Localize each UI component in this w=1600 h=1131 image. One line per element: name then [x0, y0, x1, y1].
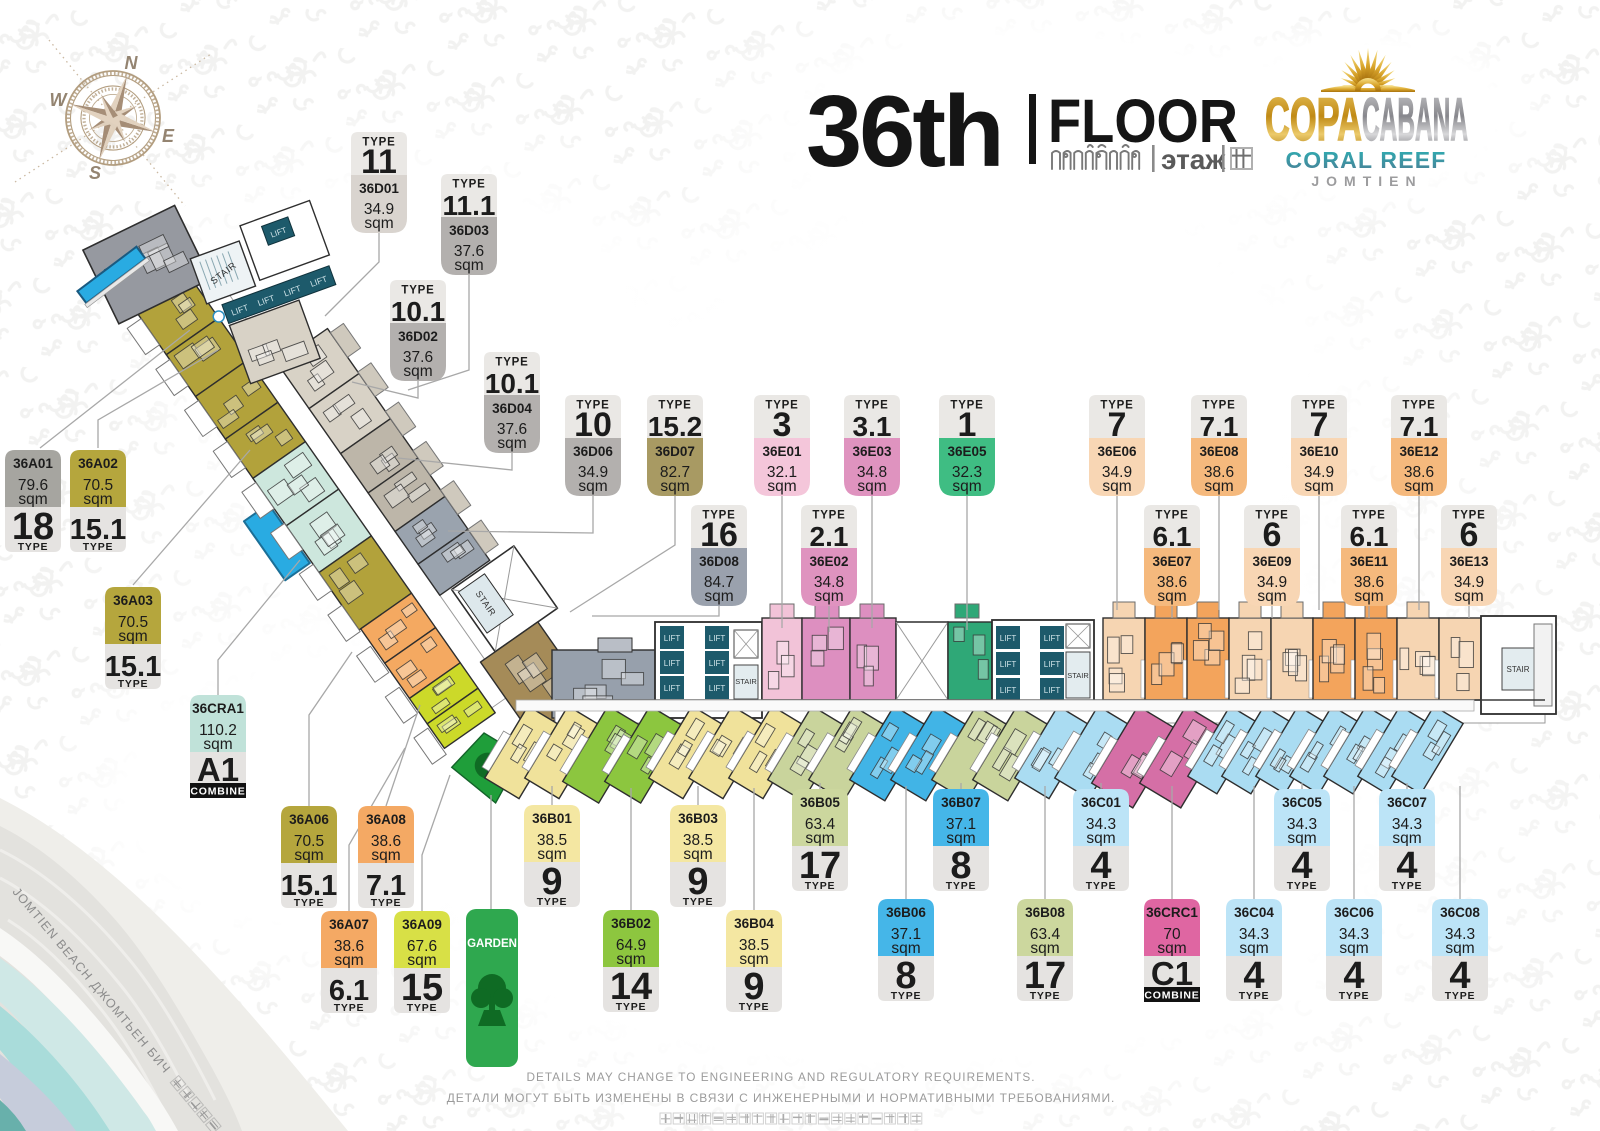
svg-text:36B04: 36B04	[734, 916, 774, 931]
svg-text:7.1: 7.1	[1400, 411, 1439, 442]
svg-text:TYPE: TYPE	[1202, 400, 1235, 412]
svg-text:36B01: 36B01	[532, 811, 572, 826]
svg-text:LIFT: LIFT	[1044, 660, 1061, 669]
svg-text:TYPE: TYPE	[1402, 400, 1435, 412]
svg-text:11.1: 11.1	[443, 190, 496, 221]
svg-text:2.1: 2.1	[810, 521, 849, 552]
svg-text:JOMTIEN: JOMTIEN	[1311, 173, 1422, 189]
svg-text:этаж: этаж	[1161, 144, 1226, 175]
svg-text:36E01: 36E01	[762, 444, 802, 459]
svg-text:sqm: sqm	[403, 363, 432, 380]
svg-text:36E08: 36E08	[1199, 444, 1239, 459]
svg-text:TYPE: TYPE	[1030, 990, 1061, 1002]
svg-text:sqm: sqm	[1257, 588, 1286, 605]
svg-text:sqm: sqm	[497, 435, 526, 452]
svg-text:sqm: sqm	[1404, 478, 1433, 495]
svg-text:TYPE: TYPE	[658, 400, 691, 412]
svg-text:STAIR: STAIR	[1507, 665, 1530, 674]
svg-text:sqm: sqm	[660, 478, 689, 495]
svg-text:7.1: 7.1	[1200, 411, 1239, 442]
svg-text:TYPE: TYPE	[891, 990, 922, 1002]
svg-text:DETAILS MAY CHANGE TO ENGINEER: DETAILS MAY CHANGE TO ENGINEERING AND RE…	[526, 1070, 1035, 1084]
svg-text:36A06: 36A06	[289, 812, 329, 827]
svg-text:TYPE: TYPE	[537, 896, 568, 908]
svg-text:36E09: 36E09	[1252, 554, 1291, 569]
svg-text:36CRA1: 36CRA1	[192, 701, 244, 716]
svg-text:ДЕТАЛИ МОГУТ БЫТЬ ИЗМЕНЕНЫ В С: ДЕТАЛИ МОГУТ БЫТЬ ИЗМЕНЕНЫ В СВЯЗИ С ИНЖ…	[447, 1091, 1116, 1105]
svg-text:15.2: 15.2	[648, 411, 703, 442]
svg-text:CABANA: CABANA	[1362, 86, 1468, 153]
svg-text:6: 6	[1460, 516, 1479, 554]
svg-text:COMBINE: COMBINE	[190, 786, 245, 798]
svg-text:TYPE: TYPE	[495, 357, 528, 369]
svg-text:sqm: sqm	[704, 588, 733, 605]
svg-text:36C07: 36C07	[1387, 795, 1427, 810]
svg-text:10.1: 10.1	[391, 296, 446, 327]
svg-text:TYPE: TYPE	[1392, 880, 1423, 892]
svg-text:36D07: 36D07	[655, 444, 695, 459]
svg-text:36B02: 36B02	[611, 916, 651, 931]
svg-text:10.1: 10.1	[485, 368, 540, 399]
svg-text:TYPE: TYPE	[118, 678, 149, 690]
svg-text:7: 7	[1310, 406, 1329, 444]
svg-text:sqm: sqm	[578, 478, 607, 495]
svg-text:36B03: 36B03	[678, 811, 718, 826]
svg-text:LIFT: LIFT	[664, 684, 681, 693]
svg-text:36B08: 36B08	[1025, 905, 1065, 920]
svg-text:36C06: 36C06	[1334, 905, 1374, 920]
svg-text:sqm: sqm	[334, 952, 363, 969]
svg-text:TYPE: TYPE	[371, 897, 402, 909]
svg-text:TYPE: TYPE	[739, 1001, 770, 1013]
svg-text:TYPE: TYPE	[805, 880, 836, 892]
svg-text:36E07: 36E07	[1152, 554, 1191, 569]
svg-text:CORAL REEF: CORAL REEF	[1285, 147, 1446, 173]
svg-text:C1: C1	[1151, 955, 1193, 992]
svg-text:TYPE: TYPE	[294, 897, 325, 909]
svg-text:36A09: 36A09	[402, 917, 442, 932]
svg-text:LIFT: LIFT	[709, 634, 726, 643]
svg-text:7: 7	[1108, 406, 1127, 444]
svg-text:LIFT: LIFT	[1000, 686, 1017, 695]
svg-text:TYPE: TYPE	[616, 1001, 647, 1013]
svg-text:36B07: 36B07	[941, 795, 981, 810]
svg-text:sqm: sqm	[1354, 588, 1383, 605]
svg-text:10: 10	[574, 406, 612, 444]
svg-text:sqm: sqm	[952, 478, 981, 495]
svg-text:TYPE: TYPE	[83, 541, 114, 553]
svg-text:A1: A1	[197, 751, 239, 788]
svg-text:sqm: sqm	[1102, 478, 1131, 495]
svg-text:COPA: COPA	[1265, 86, 1362, 153]
svg-text:TYPE: TYPE	[401, 285, 434, 297]
svg-text:36E02: 36E02	[809, 554, 848, 569]
svg-text:S: S	[89, 163, 101, 183]
svg-text:TYPE: TYPE	[855, 400, 888, 412]
svg-text:16: 16	[700, 516, 738, 554]
svg-text:TYPE: TYPE	[683, 896, 714, 908]
svg-text:LIFT: LIFT	[709, 684, 726, 693]
svg-text:36E10: 36E10	[1299, 444, 1338, 459]
svg-text:LIFT: LIFT	[1000, 634, 1017, 643]
svg-text:sqm: sqm	[454, 257, 483, 274]
svg-text:36D06: 36D06	[573, 444, 613, 459]
svg-text:TYPE: TYPE	[407, 1002, 438, 1014]
svg-text:11: 11	[361, 143, 397, 181]
svg-text:36E06: 36E06	[1097, 444, 1137, 459]
svg-text:STAIR: STAIR	[1067, 671, 1089, 680]
svg-text:36D01: 36D01	[359, 181, 399, 196]
svg-text:36C01: 36C01	[1081, 795, 1121, 810]
svg-text:LIFT: LIFT	[709, 659, 726, 668]
svg-text:sqm: sqm	[83, 491, 112, 508]
svg-text:sqm: sqm	[1454, 588, 1483, 605]
svg-text:LIFT: LIFT	[1044, 686, 1061, 695]
svg-text:36A07: 36A07	[329, 917, 369, 932]
svg-text:sqm: sqm	[857, 478, 886, 495]
svg-text:TYPE: TYPE	[1155, 510, 1188, 522]
svg-text:36E12: 36E12	[1399, 444, 1438, 459]
svg-text:LIFT: LIFT	[1044, 634, 1061, 643]
svg-text:TYPE: TYPE	[1239, 990, 1270, 1002]
svg-text:TYPE: TYPE	[1445, 990, 1476, 1002]
svg-text:sqm: sqm	[1157, 588, 1186, 605]
svg-text:36E03: 36E03	[852, 444, 892, 459]
svg-text:COMBINE: COMBINE	[1144, 990, 1199, 1002]
svg-text:36D08: 36D08	[699, 554, 739, 569]
svg-text:36D04: 36D04	[492, 401, 532, 416]
svg-text:GARDEN: GARDEN	[467, 938, 517, 950]
svg-text:36CRC1: 36CRC1	[1146, 905, 1198, 920]
svg-text:W: W	[50, 90, 69, 110]
svg-text:3.1: 3.1	[853, 411, 892, 442]
svg-text:1: 1	[958, 406, 977, 444]
svg-text:sqm: sqm	[1304, 478, 1333, 495]
svg-text:36D03: 36D03	[449, 223, 489, 238]
svg-text:6.1: 6.1	[1350, 521, 1389, 552]
svg-text:36C05: 36C05	[1282, 795, 1322, 810]
svg-text:36A02: 36A02	[78, 456, 118, 471]
svg-text:36E05: 36E05	[947, 444, 987, 459]
svg-text:E: E	[162, 126, 175, 146]
svg-text:36A01: 36A01	[13, 456, 53, 471]
svg-text:TYPE: TYPE	[1086, 880, 1117, 892]
svg-text:6.1: 6.1	[1153, 521, 1192, 552]
svg-text:TYPE: TYPE	[812, 510, 845, 522]
svg-text:TYPE: TYPE	[452, 179, 485, 191]
svg-text:36A08: 36A08	[366, 812, 406, 827]
svg-text:6: 6	[1263, 516, 1282, 554]
svg-text:sqm: sqm	[364, 215, 393, 232]
svg-text:sqm: sqm	[767, 478, 796, 495]
svg-text:36B06: 36B06	[886, 905, 926, 920]
svg-text:36B05: 36B05	[800, 795, 840, 810]
svg-text:36C04: 36C04	[1234, 905, 1274, 920]
svg-text:N: N	[125, 53, 139, 73]
svg-text:36A03: 36A03	[113, 593, 153, 608]
svg-text:36E13: 36E13	[1449, 554, 1489, 569]
svg-text:36th: 36th	[806, 76, 1002, 188]
svg-text:TYPE: TYPE	[18, 541, 49, 553]
svg-text:LIFT: LIFT	[664, 634, 681, 643]
svg-text:TYPE: TYPE	[1287, 880, 1318, 892]
svg-text:TYPE: TYPE	[334, 1002, 365, 1014]
svg-text:STAIR: STAIR	[735, 677, 757, 686]
svg-text:36C08: 36C08	[1440, 905, 1480, 920]
svg-text:36E11: 36E11	[1350, 554, 1389, 569]
svg-text:TYPE: TYPE	[946, 880, 977, 892]
svg-text:LIFT: LIFT	[1000, 660, 1017, 669]
svg-text:sqm: sqm	[371, 847, 400, 864]
svg-text:TYPE: TYPE	[1339, 990, 1370, 1002]
svg-text:sqm: sqm	[814, 588, 843, 605]
svg-text:36D02: 36D02	[398, 329, 438, 344]
svg-text:sqm: sqm	[294, 847, 323, 864]
svg-text:LIFT: LIFT	[664, 659, 681, 668]
svg-text:sqm: sqm	[1204, 478, 1233, 495]
svg-text:sqm: sqm	[118, 628, 147, 645]
svg-text:TYPE: TYPE	[1352, 510, 1385, 522]
svg-text:3: 3	[773, 406, 792, 444]
